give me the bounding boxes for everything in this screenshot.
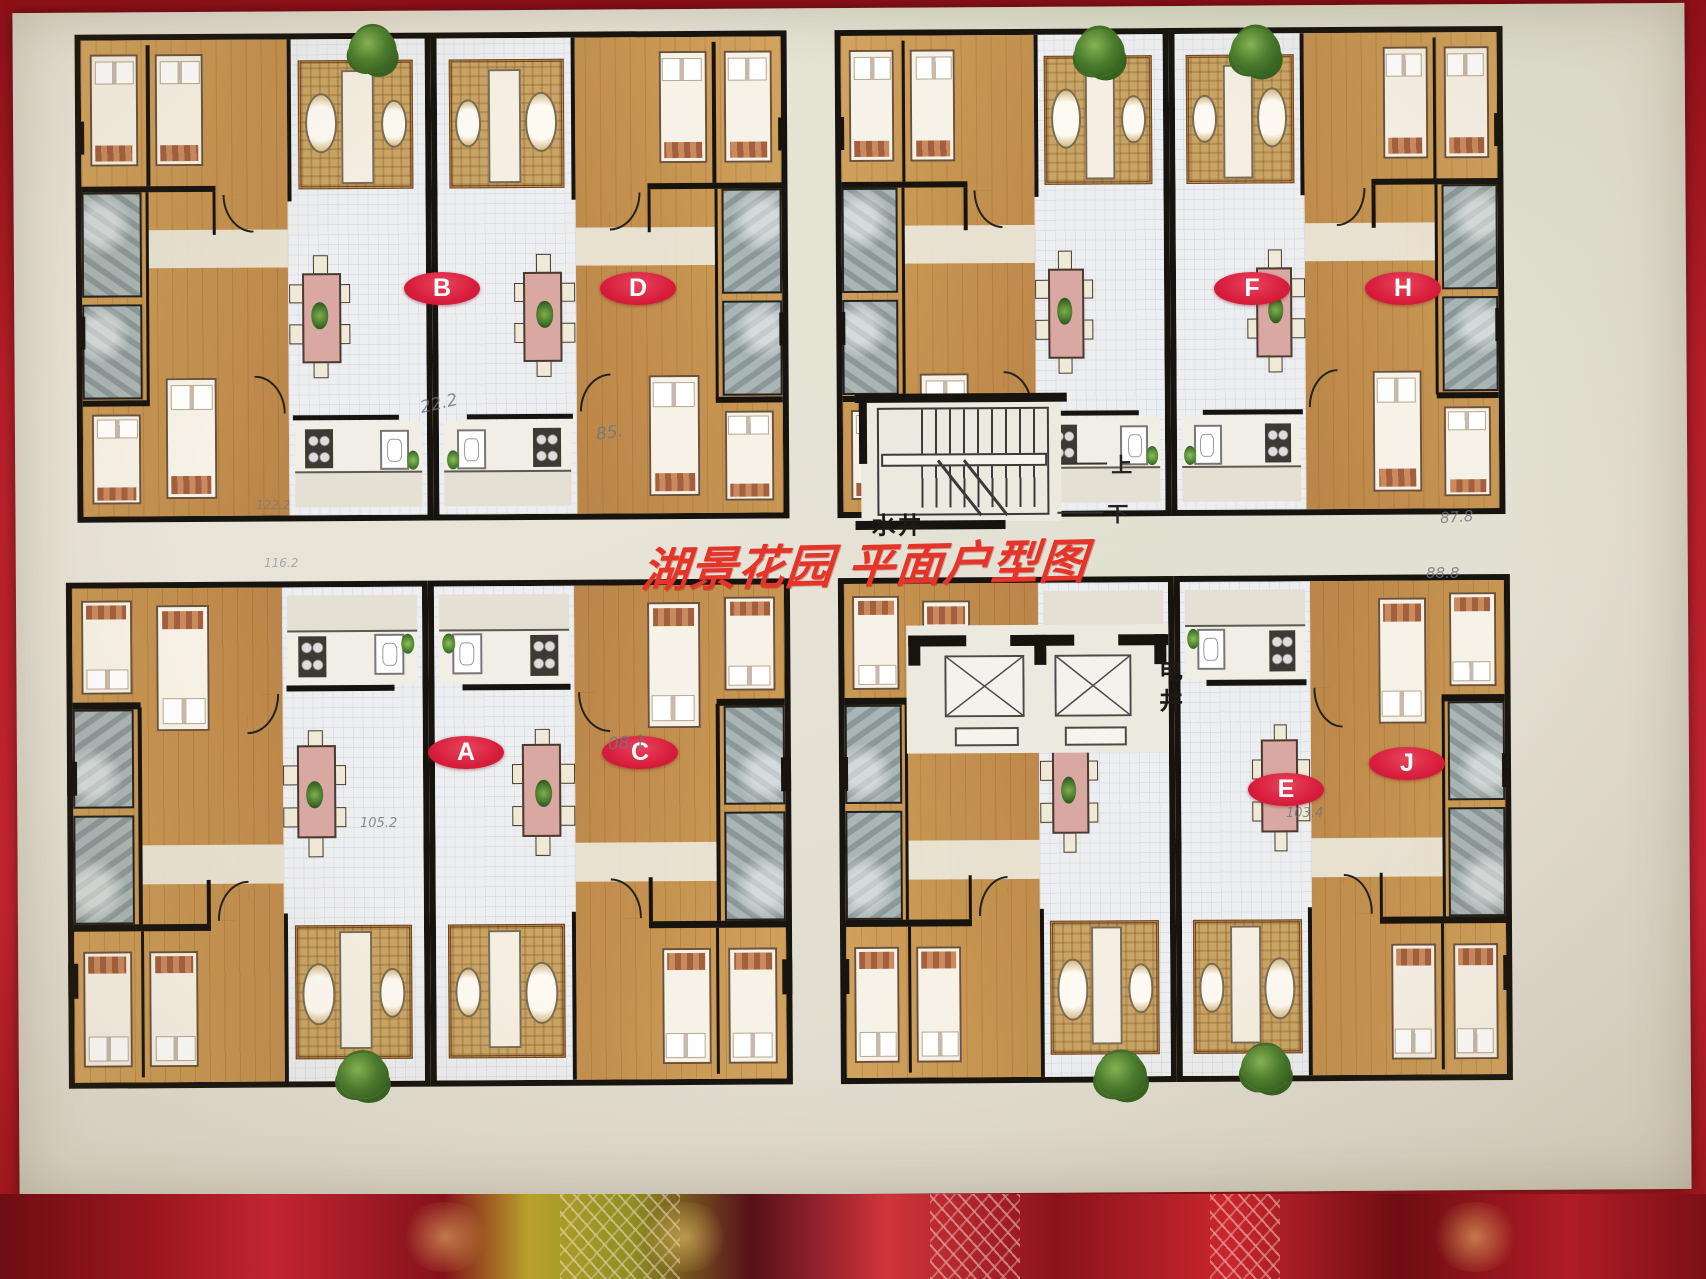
coffee-table xyxy=(525,961,558,1024)
interior-wall xyxy=(1436,392,1498,399)
kitchen-counter xyxy=(444,470,571,507)
hallway xyxy=(907,840,1040,880)
hallway xyxy=(575,227,716,266)
hallway xyxy=(575,842,719,882)
plant-icon xyxy=(401,634,414,654)
bathroom xyxy=(1449,807,1506,916)
bed xyxy=(89,55,138,167)
plant-icon xyxy=(447,450,460,469)
coffee-table xyxy=(302,963,335,1026)
kitchen xyxy=(287,595,417,685)
wall-pier xyxy=(841,959,850,994)
bed xyxy=(728,948,778,1064)
sofa xyxy=(488,69,521,183)
wall-pier xyxy=(77,317,86,350)
bed xyxy=(91,414,141,505)
interior-wall xyxy=(649,877,653,921)
bed xyxy=(659,51,708,163)
interior-wall xyxy=(1372,178,1498,185)
coffee-table xyxy=(1256,87,1287,148)
hallway xyxy=(140,844,284,884)
coffee-table xyxy=(455,99,481,147)
sofa-set xyxy=(1193,920,1302,1054)
interior-wall xyxy=(841,181,967,188)
dining-set xyxy=(295,265,344,368)
dining-set xyxy=(519,739,569,846)
sofa-set xyxy=(1050,921,1159,1055)
sofa-set xyxy=(1186,55,1295,184)
bathroom xyxy=(845,811,902,920)
interior-wall xyxy=(845,698,908,705)
bed xyxy=(1449,592,1497,686)
interior-wall xyxy=(463,684,572,691)
electric-shaft-label: 电井 xyxy=(1150,658,1185,718)
unit-badge-F: F xyxy=(1214,272,1290,305)
unit-badge-E: E xyxy=(1248,773,1324,806)
kitchen-counter xyxy=(287,595,417,633)
bathroom xyxy=(723,705,785,804)
bed xyxy=(1382,47,1428,159)
wall-pier xyxy=(1502,753,1511,788)
stove-icon xyxy=(533,427,561,467)
stair-treads xyxy=(921,409,1043,454)
sofa xyxy=(1230,925,1261,1044)
interior-wall xyxy=(212,192,216,235)
dining-set xyxy=(290,740,340,847)
bed xyxy=(155,54,204,166)
unit-plan-J xyxy=(1174,574,1513,1082)
kitchen xyxy=(444,420,572,506)
crane-truss xyxy=(1210,1194,1280,1279)
unit-plan-B xyxy=(75,33,434,523)
stove-icon xyxy=(1269,630,1296,671)
stairs-up-label: 上 xyxy=(1111,449,1132,479)
sink-icon xyxy=(452,633,482,675)
wall-pier xyxy=(67,762,76,797)
stove-icon xyxy=(305,429,333,469)
elevator-core xyxy=(906,624,1169,754)
elevator-door xyxy=(1065,726,1127,745)
kitchen xyxy=(294,421,422,507)
bed xyxy=(849,50,895,162)
coffee-table xyxy=(1128,963,1153,1013)
unit-badge-D: D xyxy=(600,272,676,305)
bed xyxy=(165,378,217,500)
bed xyxy=(1443,46,1489,158)
bathroom xyxy=(845,705,902,804)
elevator-shaft-icon xyxy=(944,655,1024,717)
sofa-set xyxy=(449,59,565,188)
wall-pier xyxy=(840,757,849,792)
wall-pier xyxy=(1503,955,1512,990)
bed xyxy=(648,602,701,728)
coffee-table xyxy=(524,92,557,153)
bathroom xyxy=(841,188,898,293)
unit-plan-A xyxy=(66,581,431,1089)
plant-icon xyxy=(1095,1052,1147,1098)
bathroom xyxy=(1442,296,1499,392)
sofa-set xyxy=(294,925,412,1059)
bed xyxy=(662,948,712,1064)
bed xyxy=(1378,598,1427,724)
bed xyxy=(1373,370,1422,492)
wall-pier xyxy=(76,122,85,155)
coffee-table xyxy=(305,93,338,154)
bathroom xyxy=(1441,184,1498,289)
handwritten-note: 103.4 xyxy=(1286,806,1323,821)
table-plant-icon xyxy=(1057,298,1072,325)
stove-icon xyxy=(530,635,559,676)
bed xyxy=(724,597,775,691)
interior-wall xyxy=(81,186,215,193)
plant-icon xyxy=(407,450,420,469)
handwritten-note: 105.2 xyxy=(360,816,397,831)
interior-wall xyxy=(286,685,395,692)
bathroom xyxy=(1448,701,1505,800)
bed xyxy=(724,51,773,163)
bed xyxy=(852,596,900,690)
plant-icon xyxy=(337,1053,389,1099)
kitchen-counter xyxy=(1185,589,1305,627)
elevator-shaft-icon xyxy=(1054,654,1131,716)
bed xyxy=(910,50,956,162)
coffee-table xyxy=(1121,95,1146,143)
interior-wall xyxy=(293,414,400,420)
handwritten-note: 87.8 xyxy=(1439,507,1474,527)
sofa-set xyxy=(297,60,413,189)
coffee-table xyxy=(1200,962,1225,1012)
table-plant-icon xyxy=(535,779,552,807)
wall-pier xyxy=(69,964,78,999)
interior-wall xyxy=(964,187,967,230)
interior-wall xyxy=(466,413,573,419)
bathroom xyxy=(73,816,135,925)
sink-icon xyxy=(380,430,410,470)
bed xyxy=(1453,943,1499,1059)
kitchen xyxy=(1182,416,1302,502)
coffee-table xyxy=(1264,957,1295,1020)
bathroom xyxy=(842,300,899,396)
wall-pier xyxy=(1495,308,1504,341)
wall-pier xyxy=(1494,113,1503,146)
bathroom xyxy=(724,812,786,921)
kitchen-counter xyxy=(1043,590,1163,628)
bed xyxy=(1391,944,1437,1060)
plant-icon xyxy=(1231,27,1281,75)
plant-icon xyxy=(1184,446,1196,465)
bed xyxy=(149,951,199,1067)
kitchen-counter xyxy=(1182,465,1301,502)
handwritten-note: 08.1 xyxy=(607,731,646,754)
bed xyxy=(916,946,962,1062)
sofa xyxy=(488,930,522,1049)
hallway xyxy=(147,230,288,269)
kitchen xyxy=(439,594,569,684)
wall-pier xyxy=(781,757,790,792)
plant-icon xyxy=(1241,1045,1291,1091)
interior-wall xyxy=(969,875,973,919)
coffee-table xyxy=(1057,958,1088,1021)
bed xyxy=(83,952,133,1068)
bathroom xyxy=(722,301,783,397)
interior-wall xyxy=(1203,409,1303,415)
bathroom xyxy=(82,305,143,401)
unit-plan-H xyxy=(1169,26,1506,516)
bed xyxy=(724,410,774,501)
coffee-table xyxy=(379,967,406,1017)
hallway xyxy=(1311,837,1444,877)
stove-icon xyxy=(1265,423,1291,463)
background-city-photo xyxy=(0,1194,1706,1279)
hallway xyxy=(1305,223,1437,262)
wall-pier xyxy=(837,312,846,345)
bed xyxy=(81,601,132,695)
dining-set xyxy=(521,264,570,367)
bathroom xyxy=(721,189,782,294)
interior-wall xyxy=(716,396,783,403)
sink-icon xyxy=(374,633,404,675)
kitchen-counter xyxy=(439,594,569,632)
handwritten-note: 88.8 xyxy=(1426,564,1459,582)
coffee-table xyxy=(1051,88,1082,149)
bed xyxy=(648,375,700,497)
elevator-door xyxy=(955,727,1019,746)
plant-icon xyxy=(1075,28,1125,76)
sofa-set xyxy=(448,924,566,1058)
plant-icon xyxy=(442,633,455,653)
handwritten-note: 116.2 xyxy=(264,556,298,570)
crane-truss xyxy=(930,1194,1020,1279)
sofa xyxy=(1084,65,1115,179)
interior-wall xyxy=(73,702,141,709)
kitchen xyxy=(1185,589,1305,679)
wall-pier xyxy=(779,312,788,345)
table-plant-icon xyxy=(306,781,323,809)
stairs-down-label: 下 xyxy=(1107,498,1128,528)
stairwell xyxy=(861,401,1062,522)
bed xyxy=(1444,406,1491,497)
dining-set xyxy=(1042,261,1088,364)
bathroom xyxy=(81,193,142,298)
handwritten-note: 85. xyxy=(595,421,625,445)
wall-pier xyxy=(783,960,792,995)
unit-plan-D xyxy=(431,30,790,520)
interior-wall xyxy=(1372,185,1375,228)
sink-icon xyxy=(1197,628,1225,669)
plant-icon xyxy=(1146,446,1158,465)
bathroom xyxy=(73,709,135,808)
unit-plan-C xyxy=(428,578,793,1086)
sofa xyxy=(341,69,374,183)
unit-badge-J: J xyxy=(1369,747,1445,780)
unit-badge-H: H xyxy=(1365,272,1441,305)
table-plant-icon xyxy=(311,302,328,329)
kitchen-counter xyxy=(295,471,422,508)
coffee-table xyxy=(455,967,482,1017)
interior-wall xyxy=(207,880,211,924)
sofa xyxy=(1091,926,1122,1045)
coffee-table xyxy=(381,100,407,148)
wall-pier xyxy=(778,117,787,150)
interior-wall xyxy=(1442,694,1505,701)
plant-icon xyxy=(348,27,396,73)
coffee-table xyxy=(1192,95,1217,143)
poster-title: 湖景花园 平面户型图 xyxy=(639,522,1091,600)
table-plant-icon xyxy=(537,301,554,328)
sofa xyxy=(339,931,373,1050)
interior-wall xyxy=(1206,680,1306,687)
stove-icon xyxy=(298,636,327,677)
bed xyxy=(854,947,900,1063)
unit-badge-A: A xyxy=(428,736,504,769)
interior-wall xyxy=(1379,873,1383,917)
plant-icon xyxy=(1187,629,1199,649)
handwritten-note: 122.2 xyxy=(256,498,290,512)
floorplan-poster: 上 下 水井 电井 xyxy=(12,3,1691,1199)
interior-wall xyxy=(717,699,785,706)
interior-wall xyxy=(647,182,781,189)
hallway xyxy=(903,225,1035,264)
sink-icon xyxy=(1194,425,1222,465)
interior-wall xyxy=(647,189,651,232)
sofa xyxy=(1223,64,1254,178)
bed xyxy=(156,605,209,731)
unit-badge-B: B xyxy=(404,272,480,305)
interior-wall xyxy=(83,400,150,407)
sink-icon xyxy=(457,429,487,469)
wall-pier xyxy=(836,117,845,150)
